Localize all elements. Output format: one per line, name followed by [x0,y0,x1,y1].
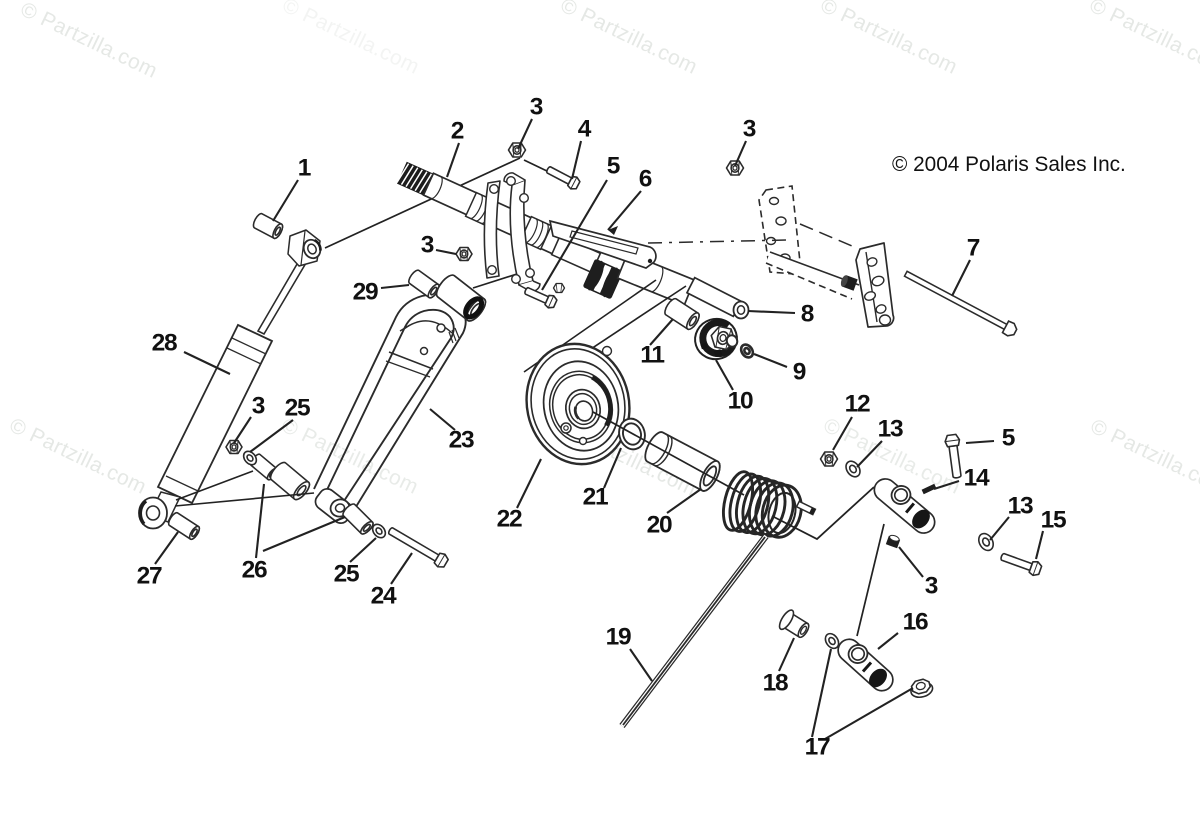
svg-text:5: 5 [607,153,620,180]
svg-text:25: 25 [334,561,359,588]
svg-text:18: 18 [763,670,788,697]
svg-text:10: 10 [728,388,753,415]
svg-text:17: 17 [805,734,830,761]
svg-text:25: 25 [285,395,310,422]
svg-text:11: 11 [640,342,664,369]
svg-text:20: 20 [647,512,672,539]
svg-text:27: 27 [137,563,162,590]
svg-text:2: 2 [451,118,464,145]
svg-text:15: 15 [1041,507,1066,534]
svg-text:3: 3 [421,232,434,259]
svg-text:28: 28 [152,330,177,357]
svg-text:3: 3 [530,94,543,121]
svg-text:14: 14 [964,465,990,492]
svg-text:13: 13 [1008,493,1033,520]
svg-text:6: 6 [639,166,652,193]
svg-text:3: 3 [252,393,265,420]
svg-text:1: 1 [298,155,311,182]
svg-text:26: 26 [242,557,267,584]
svg-text:3: 3 [925,573,938,600]
svg-text:21: 21 [583,484,608,511]
svg-text:16: 16 [903,609,928,636]
svg-text:7: 7 [967,235,980,262]
svg-text:23: 23 [449,427,474,454]
svg-text:5: 5 [1002,425,1015,452]
svg-text:24: 24 [371,583,397,610]
svg-text:9: 9 [793,359,806,386]
svg-text:3: 3 [743,116,756,143]
svg-text:© 2004 Polaris Sales Inc.: © 2004 Polaris Sales Inc. [892,153,1126,176]
svg-text:8: 8 [801,301,814,328]
svg-text:22: 22 [497,506,522,533]
svg-text:4: 4 [578,116,592,143]
svg-text:29: 29 [353,279,378,306]
svg-text:19: 19 [606,624,631,651]
svg-text:13: 13 [878,416,903,443]
svg-text:12: 12 [845,391,870,418]
